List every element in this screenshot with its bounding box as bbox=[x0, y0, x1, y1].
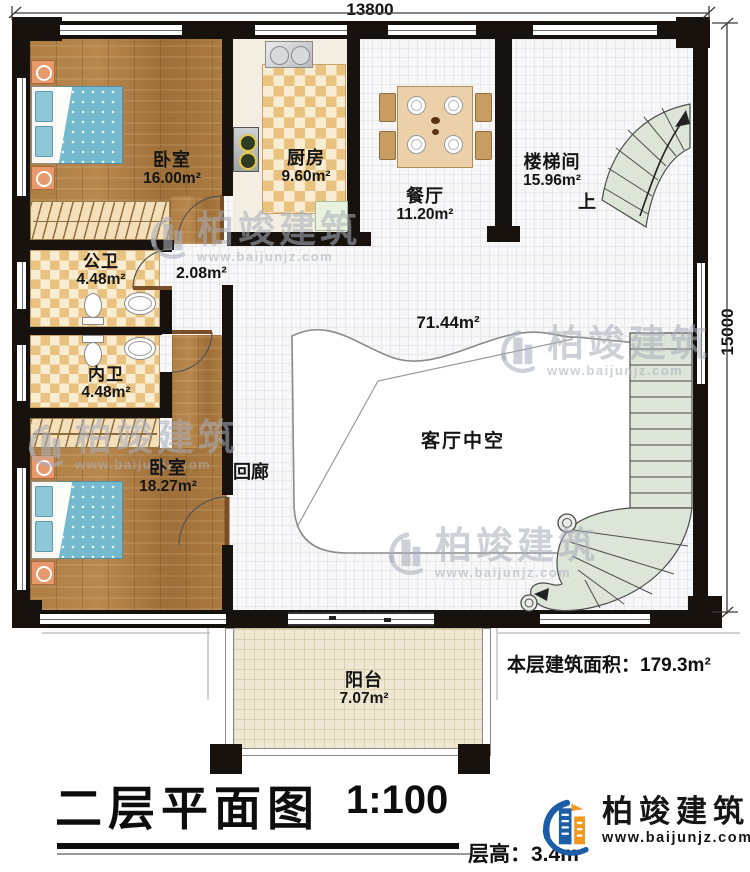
balcony-rail-left bbox=[225, 628, 234, 755]
corridor-top-floor bbox=[170, 196, 222, 244]
bath-sink bbox=[124, 337, 156, 360]
nightstand bbox=[31, 60, 55, 84]
dining-chair bbox=[379, 93, 396, 122]
wall-kitchen-south bbox=[227, 232, 371, 246]
corner-top-left bbox=[12, 17, 62, 41]
floor-area-label: 本层建筑面积： bbox=[507, 655, 640, 676]
wall-kitchen-dining bbox=[347, 39, 360, 232]
window-left-public-bath bbox=[15, 262, 28, 309]
label-stairs-up: 上 bbox=[578, 188, 596, 214]
window-right-stair bbox=[695, 263, 707, 384]
corner-bottom-left bbox=[12, 600, 42, 628]
kitchen-sink bbox=[265, 41, 313, 68]
sliding-door-handle bbox=[329, 616, 336, 620]
balcony-sliding-door bbox=[288, 612, 434, 626]
wall-bath-divider bbox=[28, 327, 162, 335]
wall-bath-east-1 bbox=[160, 240, 172, 252]
pillow bbox=[35, 91, 53, 122]
wardrobe-bottom bbox=[30, 418, 160, 448]
label-kitchen: 厨房 9.60m² bbox=[250, 148, 362, 186]
dining-chair bbox=[475, 93, 492, 122]
dining-chair bbox=[475, 131, 492, 160]
kitchen-appliance bbox=[315, 201, 348, 231]
pillow bbox=[35, 126, 53, 157]
company-website: www.baijunjz.com bbox=[602, 830, 750, 846]
label-living-void: 客厅中空 bbox=[393, 426, 533, 453]
dining-table bbox=[397, 86, 473, 168]
floor-area-note: 本层建筑面积：179.3m² bbox=[507, 650, 711, 677]
window-left-bedroom-top bbox=[15, 78, 28, 196]
wardrobe-top bbox=[30, 201, 170, 240]
window-left-bedroom-bottom bbox=[15, 468, 28, 590]
label-void-area: 71.44m² bbox=[398, 313, 498, 333]
kitchen-rug bbox=[262, 64, 346, 214]
company-name: 柏竣建筑 bbox=[602, 796, 750, 827]
floor-plan-canvas: 13800 15000 bbox=[0, 0, 750, 872]
sliding-door-handle bbox=[384, 618, 391, 622]
label-dining: 餐厅 11.20m² bbox=[366, 186, 484, 224]
floor-height-label: 层高： bbox=[468, 843, 531, 866]
wall-corridor-east-lower bbox=[222, 545, 233, 610]
label-corridor: 回廊 bbox=[233, 458, 269, 484]
toilet-bowl bbox=[84, 293, 102, 318]
window-left-private-bath bbox=[15, 345, 28, 401]
title-underline-thin bbox=[57, 853, 471, 855]
window-top-1 bbox=[60, 23, 182, 37]
label-public-bath: 公卫 4.48m² bbox=[45, 252, 157, 288]
label-balcony: 阳台 7.07m² bbox=[304, 670, 424, 708]
balcony-rail-bottom bbox=[225, 748, 491, 756]
floor-area-value: 179.3m² bbox=[640, 655, 711, 676]
label-hall-nook-area: 2.08m² bbox=[176, 265, 227, 283]
dimension-right-label: 15000 bbox=[718, 292, 738, 372]
window-top-dining bbox=[388, 23, 476, 37]
toilet-tank bbox=[82, 317, 104, 325]
nightstand bbox=[31, 455, 55, 479]
sheet-scale: 1:100 bbox=[346, 778, 448, 823]
label-stairwell: 楼梯间 15.96m² bbox=[492, 152, 612, 190]
dimension-top-label: 13800 bbox=[310, 0, 430, 20]
pillow bbox=[35, 521, 53, 552]
company-logo: 柏竣建筑 www.baijunjz.com bbox=[540, 796, 750, 862]
wall-dining-stairwell bbox=[495, 39, 512, 233]
corridor-mid-floor bbox=[172, 335, 222, 448]
pillow bbox=[35, 486, 53, 517]
wall-bath-east-2 bbox=[160, 290, 172, 334]
wall-bath-south bbox=[28, 408, 162, 418]
window-top-stairwell bbox=[533, 23, 657, 37]
nightstand bbox=[31, 561, 55, 585]
window-bottom-right bbox=[540, 612, 650, 626]
title-underline bbox=[57, 843, 459, 849]
window-top-kitchen bbox=[255, 23, 347, 37]
wall-dining-stairwell-cap bbox=[487, 226, 520, 242]
sheet-title: 二层平面图 bbox=[55, 770, 320, 839]
company-logo-icon bbox=[540, 796, 594, 862]
balcony-rail-right bbox=[482, 628, 491, 755]
nightstand bbox=[31, 166, 55, 190]
dining-chair bbox=[379, 131, 396, 160]
corner-top-right bbox=[676, 17, 710, 48]
label-private-bath: 内卫 4.48m² bbox=[50, 365, 162, 401]
corner-bottom-right bbox=[688, 596, 722, 628]
balcony-pillar-right bbox=[458, 744, 490, 774]
label-bedroom-top: 卧室 16.00m² bbox=[110, 150, 234, 188]
window-bottom-bedroom bbox=[40, 612, 226, 626]
bath-sink bbox=[124, 292, 156, 315]
toilet-bowl bbox=[84, 342, 102, 367]
wall-bath-north bbox=[28, 240, 174, 250]
label-bedroom-bottom: 卧室 18.27m² bbox=[108, 458, 228, 496]
